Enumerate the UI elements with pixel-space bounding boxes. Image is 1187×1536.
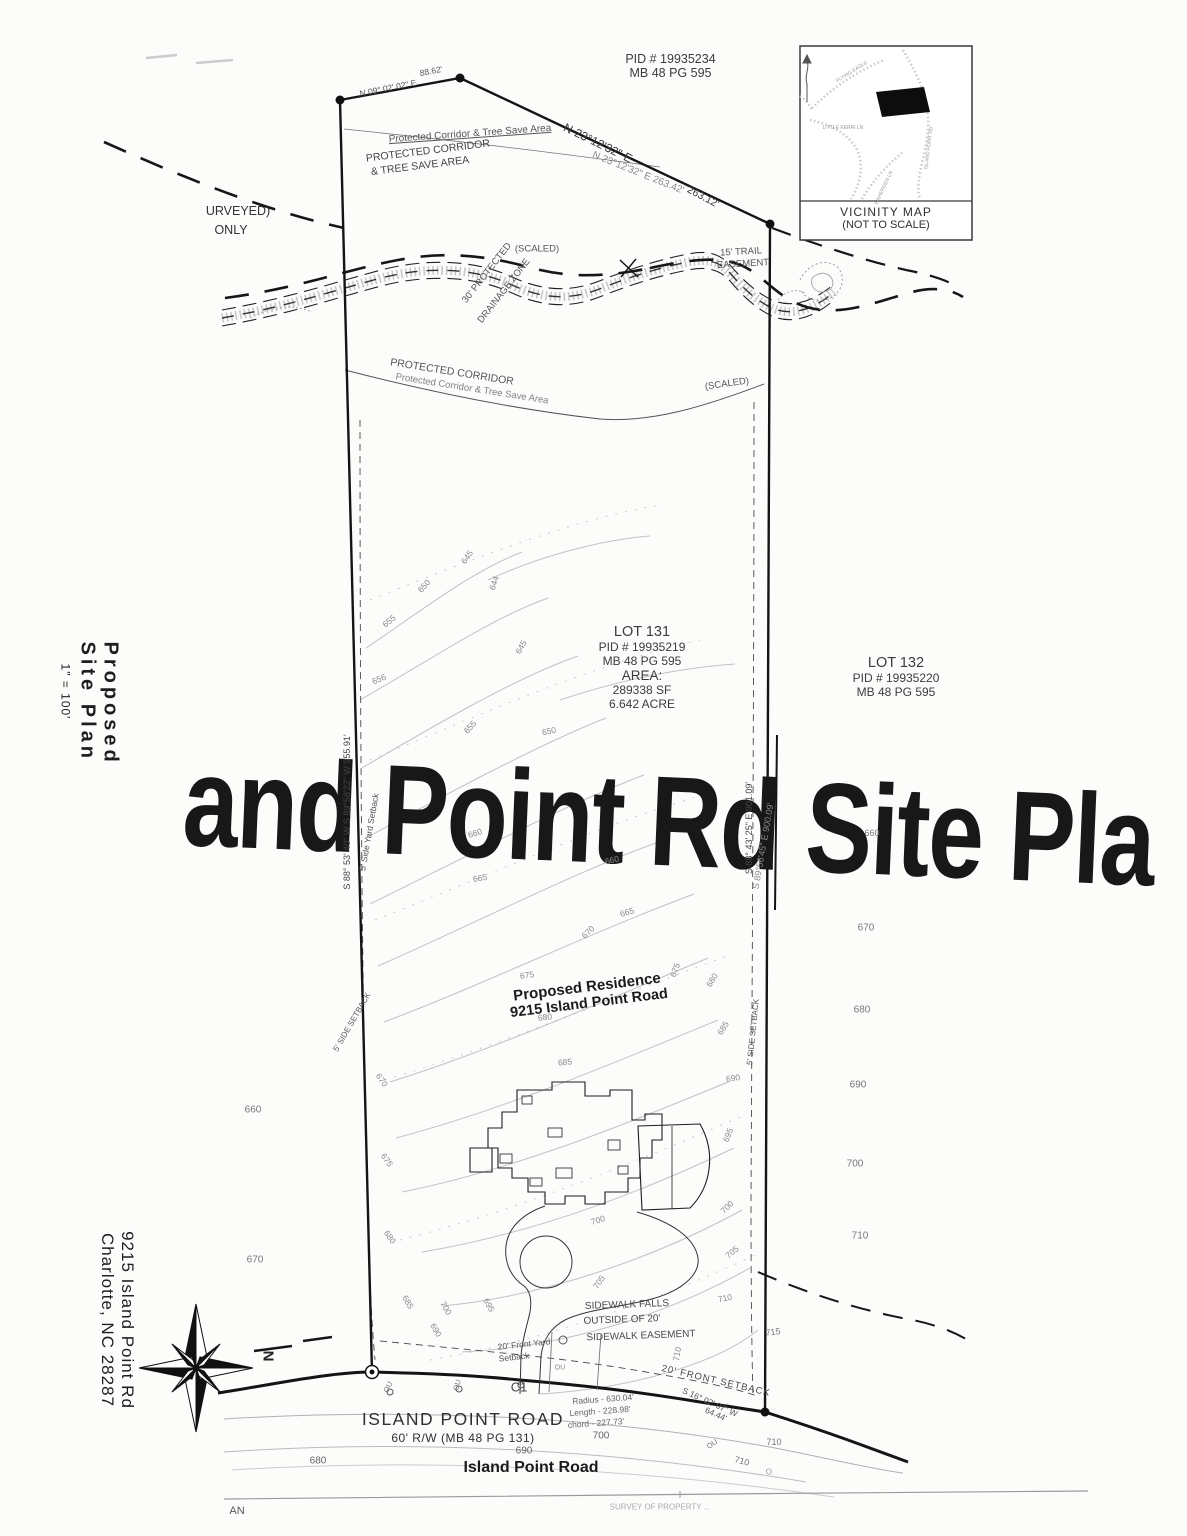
contour-label: 680 — [310, 1456, 327, 1467]
lot-131-pid: PID # 19935219 — [572, 640, 712, 654]
lot-131-name: LOT 131 — [572, 624, 712, 640]
scan-artifacts — [146, 55, 233, 63]
survey-partial: SURVEY OF PROPERTY ... — [610, 1503, 711, 1512]
lot-131-area-sf: 289338 SF — [572, 683, 712, 697]
contour-label: 680 — [537, 1011, 552, 1022]
road-name-block: ISLAND POINT ROAD 60' R/W (MB 48 PG 131) — [362, 1409, 564, 1445]
site-address-block: 9215 Island Point Rd Charlotte, NC 28287 — [97, 1225, 137, 1415]
contour-label: 690 — [516, 1446, 533, 1457]
setback-lines — [360, 402, 757, 1397]
lot-131-area-acres: 6.642 ACRE — [572, 697, 712, 711]
road-edges — [224, 1414, 1088, 1499]
lot-132-pid: PID # 19935220 — [826, 671, 966, 685]
contour-label: 690 — [725, 1072, 740, 1084]
surveyed-note-2: ONLY — [214, 223, 247, 237]
site-plan-sheet: and Point Rd Site Pla Proposed Site Plan… — [0, 0, 1187, 1536]
house-footprint — [470, 1082, 710, 1210]
vicinity-road-label: LITTLE KERRI LN — [823, 125, 864, 131]
curve-label: C1 — [511, 1380, 528, 1395]
contour-label: 710 — [766, 1437, 781, 1447]
plan-scale: 1" = 100' — [59, 642, 73, 742]
contour-label: 685 — [557, 1056, 572, 1067]
contour-label: 675 — [519, 969, 534, 981]
vicinity-map-subtitle: (NOT TO SCALE) — [800, 219, 972, 231]
adjacent-parcel-pid: PID # 19935234 — [598, 52, 743, 66]
lot-132-name: LOT 132 — [826, 655, 966, 671]
trail-squiggles — [778, 262, 842, 300]
adjacent-parcel-mapbook: MB 48 PG 595 — [598, 66, 743, 80]
contour-label: 660 — [864, 828, 879, 838]
surveyed-note-1: URVEYED) — [206, 204, 270, 218]
lot-132-mapbook: MB 48 PG 595 — [826, 685, 966, 699]
contour-label: 715 — [765, 1326, 781, 1338]
lot-131-info: LOT 131 PID # 19935219 MB 48 PG 595 AREA… — [572, 624, 712, 711]
contour-label: 690 — [850, 1080, 867, 1091]
vicinity-map-caption: VICINITY MAP (NOT TO SCALE) — [800, 205, 972, 231]
contour-label: 680 — [854, 1005, 871, 1016]
utility-label: OU — [555, 1365, 566, 1372]
contour-label: O. — [766, 1468, 774, 1477]
contour-label: 700 — [593, 1431, 610, 1442]
lot-131-mapbook: MB 48 PG 595 — [572, 654, 712, 668]
contour-label: 670 — [247, 1255, 264, 1266]
road-partial-an: AN — [229, 1505, 244, 1517]
vicinity-map-title: VICINITY MAP — [800, 205, 972, 219]
road-right-of-way: 60' R/W (MB 48 PG 131) — [362, 1431, 564, 1445]
lot-132-info: LOT 132 PID # 19935220 MB 48 PG 595 — [826, 655, 966, 699]
contour-label: 700 — [847, 1159, 864, 1170]
site-address-line1: 9215 Island Point Rd — [117, 1225, 137, 1415]
site-address-line2: Charlotte, NC 28287 — [97, 1225, 117, 1415]
lot-131-area-label: AREA: — [572, 668, 712, 683]
trail-easement-1: 15' TRAIL — [720, 245, 762, 258]
contour-label: 660 — [245, 1105, 262, 1116]
contour-label: 670 — [858, 923, 875, 934]
road-name-caps: ISLAND POINT ROAD — [362, 1409, 564, 1430]
vicinity-site-parcel — [876, 87, 930, 117]
bearing-right-boundary: S 88° 43' 25" E 901.09' — [744, 782, 754, 874]
north-label: N — [260, 1351, 277, 1362]
bearing-left-boundary: S 88° 53' 40" W S 89°58'22" W 955.91' — [342, 734, 352, 889]
plan-title-block: Proposed Site Plan 1" = 100' — [59, 642, 122, 742]
plan-title-line1: Proposed — [99, 642, 122, 742]
adjacent-parcel-id: PID # 19935234 MB 48 PG 595 — [598, 52, 743, 80]
road-name-bold: Island Point Road — [463, 1459, 598, 1477]
contour-label: 710 — [852, 1231, 869, 1242]
compass-rose-icon — [139, 1304, 253, 1432]
scaled-label-1: (SCALED) — [515, 244, 559, 255]
plan-title-line2: Site Plan — [76, 642, 99, 742]
